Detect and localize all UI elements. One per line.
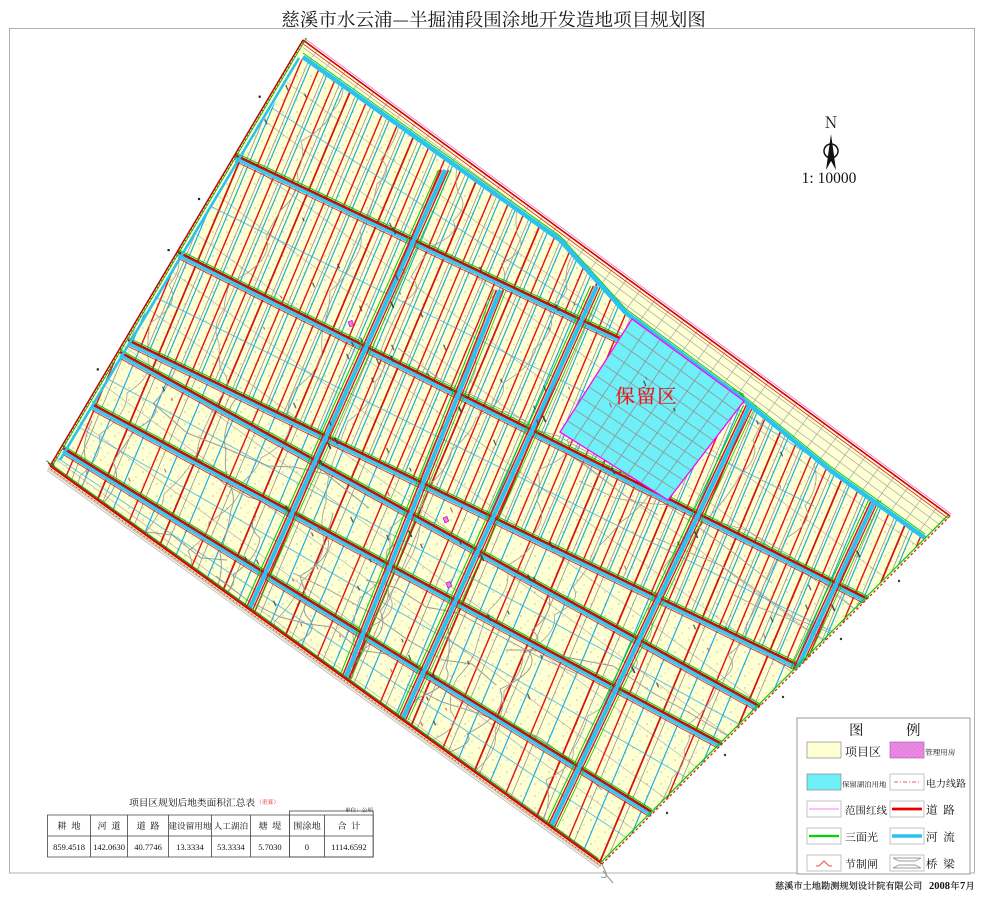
svg-text:40.7746: 40.7746 [134, 842, 162, 852]
svg-text:53.3334: 53.3334 [217, 842, 245, 852]
svg-text:5.7030: 5.7030 [258, 842, 281, 852]
svg-text:0: 0 [305, 842, 309, 852]
svg-text:142.0630: 142.0630 [93, 842, 125, 852]
svg-text:2008: 2008 [929, 881, 950, 892]
svg-text:13.3334: 13.3334 [176, 842, 204, 852]
svg-text:859.4518: 859.4518 [53, 842, 85, 852]
svg-text:1114.6592: 1114.6592 [331, 842, 367, 852]
svg-text:7: 7 [960, 881, 965, 892]
svg-text:1: 10000: 1: 10000 [802, 170, 857, 187]
